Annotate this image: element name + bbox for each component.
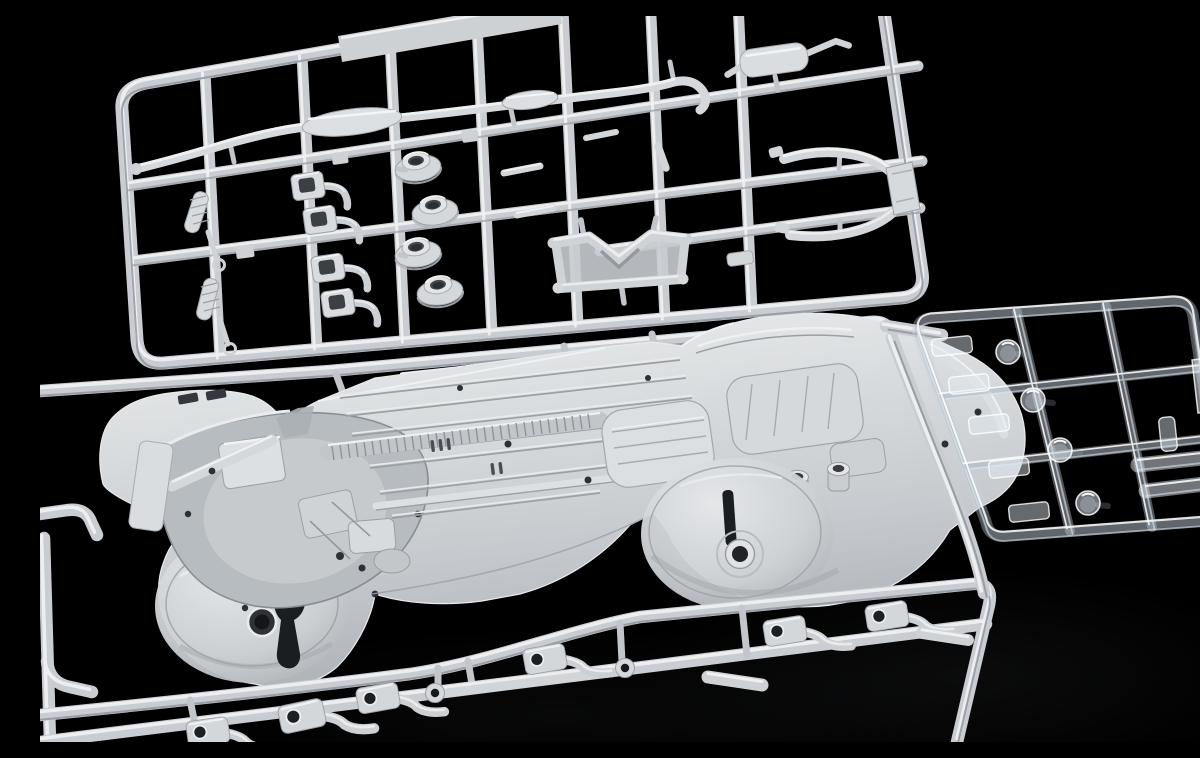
model-kit-sprues-photo: Unassembled plastic scale-model car kit … (40, 16, 1200, 742)
photo-canvas (40, 16, 1200, 742)
